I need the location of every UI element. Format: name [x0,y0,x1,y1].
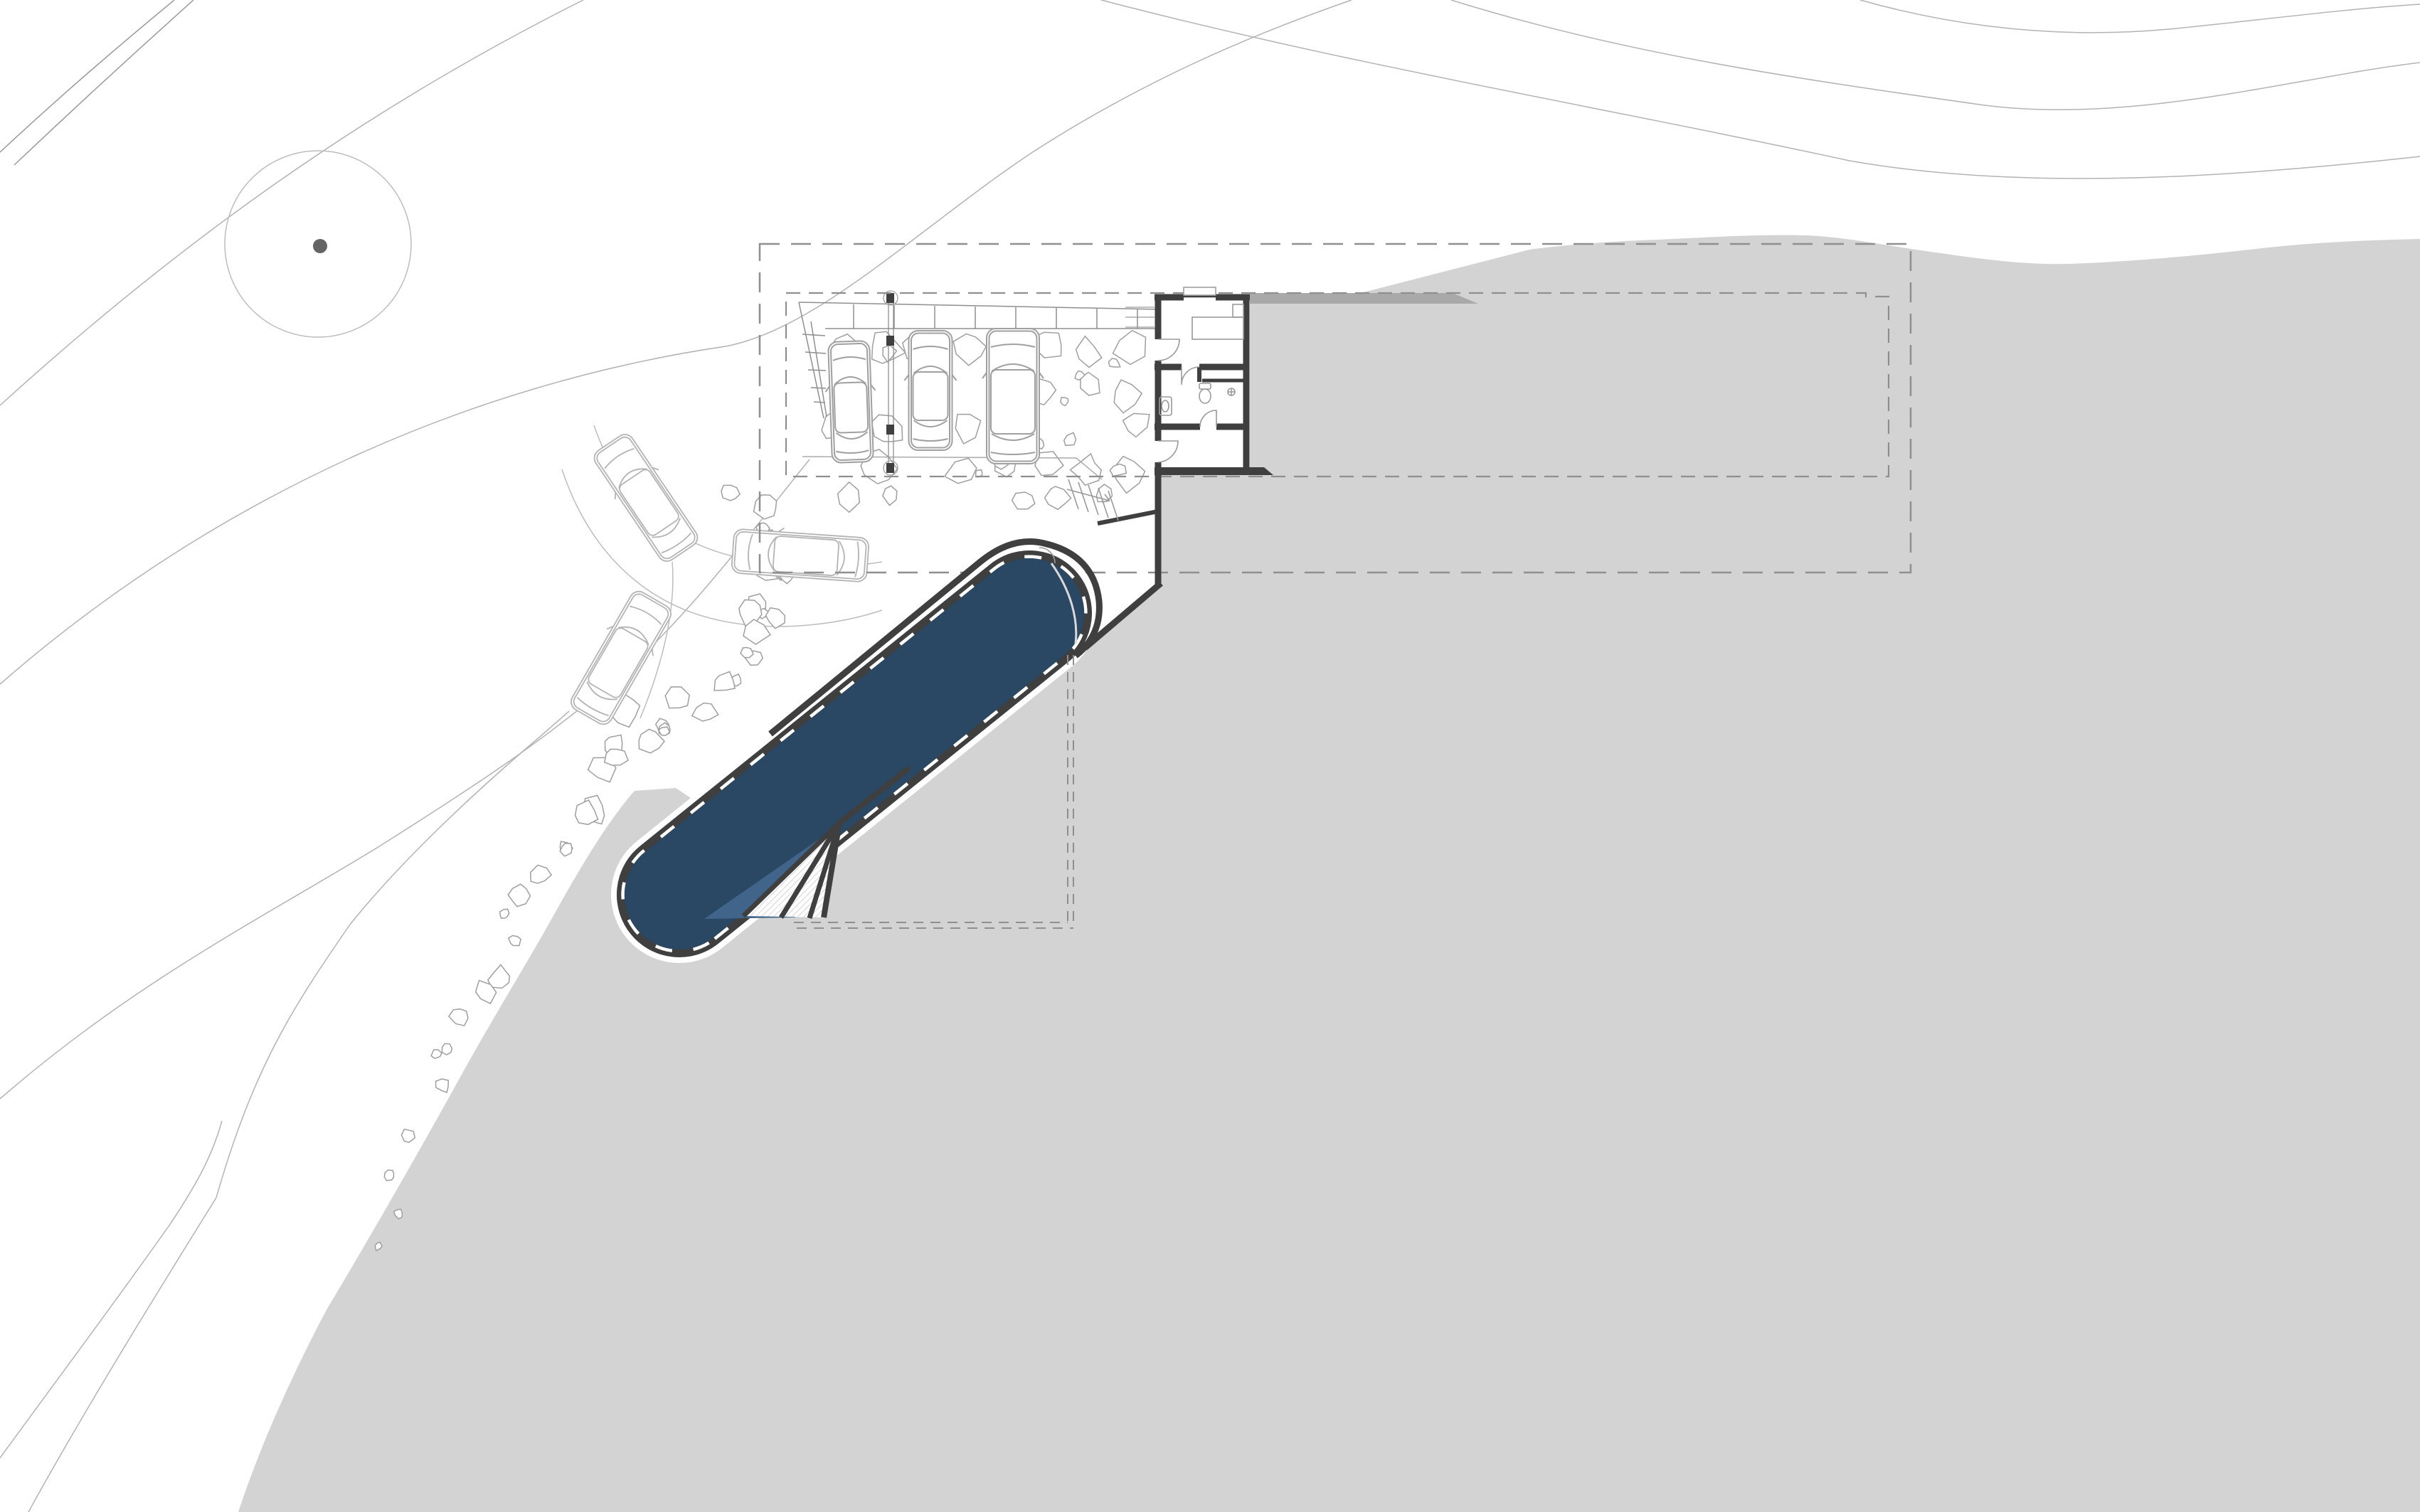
building-interior [1158,294,1246,474]
parked-car [982,329,1044,464]
tree-trunk-icon [313,239,327,253]
channel-node [886,336,894,346]
flagstone [384,1170,393,1181]
entry-door-recess [1184,287,1216,295]
site-plan-svg [0,0,2420,1512]
site-plan-canvas [0,0,2420,1512]
parked-car [824,341,878,463]
flagstone [442,1044,452,1055]
car-body-line [987,329,1039,464]
parked-car [905,331,957,450]
channel-node [886,463,894,473]
flagstone [605,749,628,765]
channel-node [886,425,894,435]
channel-node [886,293,894,303]
parked-cars [824,329,1044,464]
roof-edge-band [1250,293,1478,304]
wall-south [1155,467,1273,475]
